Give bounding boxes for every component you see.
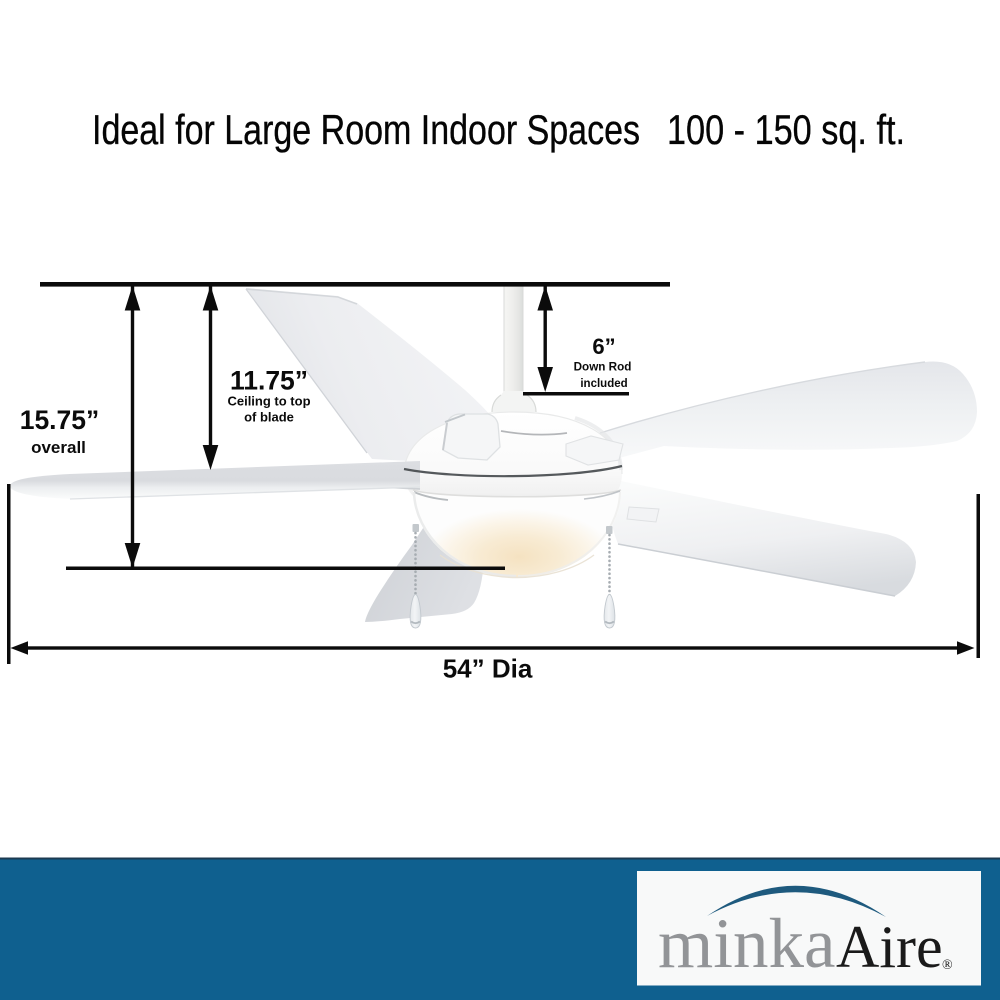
- svg-text:6”: 6”: [592, 334, 615, 359]
- svg-text:minka: minka: [658, 905, 835, 983]
- svg-text:Aire: Aire: [836, 914, 943, 980]
- svg-text:Ideal for Large Room Indoor Sp: Ideal for Large Room Indoor Spaces: [92, 106, 640, 153]
- svg-text:of blade: of blade: [244, 410, 294, 425]
- svg-text:overall: overall: [31, 438, 86, 457]
- svg-text:54” Dia: 54” Dia: [443, 654, 533, 684]
- svg-text:Ceiling to top: Ceiling to top: [227, 394, 310, 409]
- svg-text:11.75”: 11.75”: [230, 366, 308, 396]
- svg-text:15.75”: 15.75”: [20, 405, 100, 435]
- svg-text:100 - 150 sq. ft.: 100 - 150 sq. ft.: [667, 106, 905, 153]
- svg-text:Down Rod: Down Rod: [574, 361, 632, 374]
- svg-text:included: included: [580, 378, 627, 390]
- svg-text:®: ®: [942, 958, 953, 973]
